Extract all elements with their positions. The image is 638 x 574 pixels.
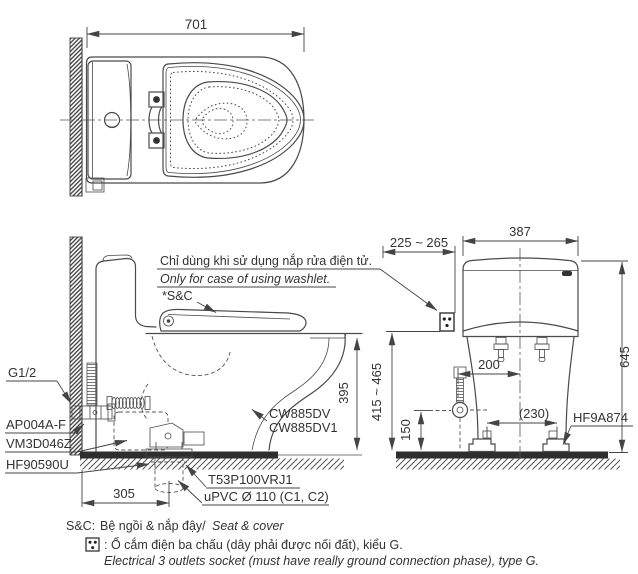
bolt-callout: HF9A874 — [563, 410, 633, 445]
top-view: 701 — [60, 17, 314, 196]
dim-valve-height-value: 150 — [398, 419, 413, 441]
dim-230: (230) — [487, 406, 557, 438]
label-g12: G1/2 — [8, 365, 36, 380]
pedestal-front — [467, 337, 574, 452]
tank-plan — [86, 61, 131, 192]
front-view: 225 ~ 265 387 645 415 ~ 465 150 — [369, 224, 633, 470]
dim-bolt-spacing-value: (230) — [519, 406, 549, 421]
dim-701: 701 — [87, 17, 304, 52]
label-vm3d046z: VM3D046Z — [6, 436, 72, 451]
washlet-seat-side — [160, 309, 306, 331]
note-english: Only for case of using washlet. — [160, 272, 330, 286]
footnote-socket-vietnamese: : Ổ cắm điện ba chấu (dây phải được nối … — [104, 537, 403, 552]
floor-hatch-right — [396, 459, 620, 470]
brand-logo-mark — [562, 271, 572, 276]
power-socket — [440, 246, 455, 331]
dim-total-height-value: 645 — [617, 346, 632, 368]
flexible-hose-coil — [107, 397, 150, 410]
dim-150: 150 — [398, 411, 451, 451]
dim-tank-width-value: 387 — [509, 224, 531, 239]
footnote-sc-vietnamese: Bệ ngồi & nắp đậy/ — [100, 518, 206, 533]
floor-bar-left — [80, 452, 278, 459]
dim-305: 305 — [82, 470, 169, 507]
dim-rim-height-value: 395 — [336, 382, 351, 404]
tank-front — [463, 258, 578, 337]
dim-supply-offset-value: 200 — [478, 357, 500, 372]
dim-225-265: 225 ~ 265 — [383, 235, 455, 258]
dim-395: 395 — [336, 338, 357, 450]
note-vietnamese: Chỉ dùng khi sử dụng nắp rửa điện tử. — [160, 253, 372, 268]
footnotes: S&C: Bệ ngồi & nắp đậy/ Seat & cover : Ổ… — [66, 518, 539, 568]
foot-right — [543, 439, 569, 452]
footnote-sc-prefix: S&C: — [66, 519, 95, 533]
drain-callouts: T53P100VRJ1 uPVC Ø 110 (C1, C2) — [178, 465, 329, 505]
seat-ref-label: *S&C — [162, 289, 193, 303]
label-ap004af: AP004A-F — [6, 417, 66, 432]
floor-bar-right — [396, 452, 608, 459]
foot-left — [469, 439, 495, 452]
dim-200: 200 — [458, 357, 520, 401]
drawing-svg: 701 — [0, 0, 638, 574]
label-hf9a874: HF9A874 — [573, 410, 628, 425]
dim-socket-offset-value: 225 ~ 265 — [390, 235, 448, 250]
label-t53p100vrj1: T53P100VRJ1 — [208, 472, 293, 487]
dim-outlet-offset-value: 305 — [113, 486, 135, 501]
model-callout: CW885DV CW885DV1 — [252, 406, 338, 435]
dim-depth-value: 701 — [185, 17, 208, 32]
tank-bolts — [494, 338, 549, 362]
label-hf90590u: HF90590U — [6, 457, 69, 472]
label-cw885dv: CW885DV — [269, 406, 331, 421]
footnote-sc-english: Seat & cover — [212, 519, 284, 533]
socket-icon — [440, 313, 454, 331]
technical-drawing-page: 701 — [0, 0, 638, 574]
wall-hatch-side — [70, 237, 82, 455]
label-upvc: uPVC Ø 110 (C1, C2) — [204, 489, 329, 504]
dim-387: 387 — [463, 224, 578, 256]
supply-riser — [87, 363, 97, 405]
socket-legend-icon — [86, 538, 99, 551]
footnote-socket-english: Electrical 3 outlets socket (must have r… — [104, 554, 539, 568]
washlet-note: Chỉ dùng khi sử dụng nắp rửa điện tử. On… — [157, 253, 437, 313]
dim-socket-height-value: 415 ~ 465 — [369, 363, 384, 421]
wall-hatch-top — [70, 38, 82, 196]
label-cw885dv1: CW885DV1 — [269, 420, 338, 435]
